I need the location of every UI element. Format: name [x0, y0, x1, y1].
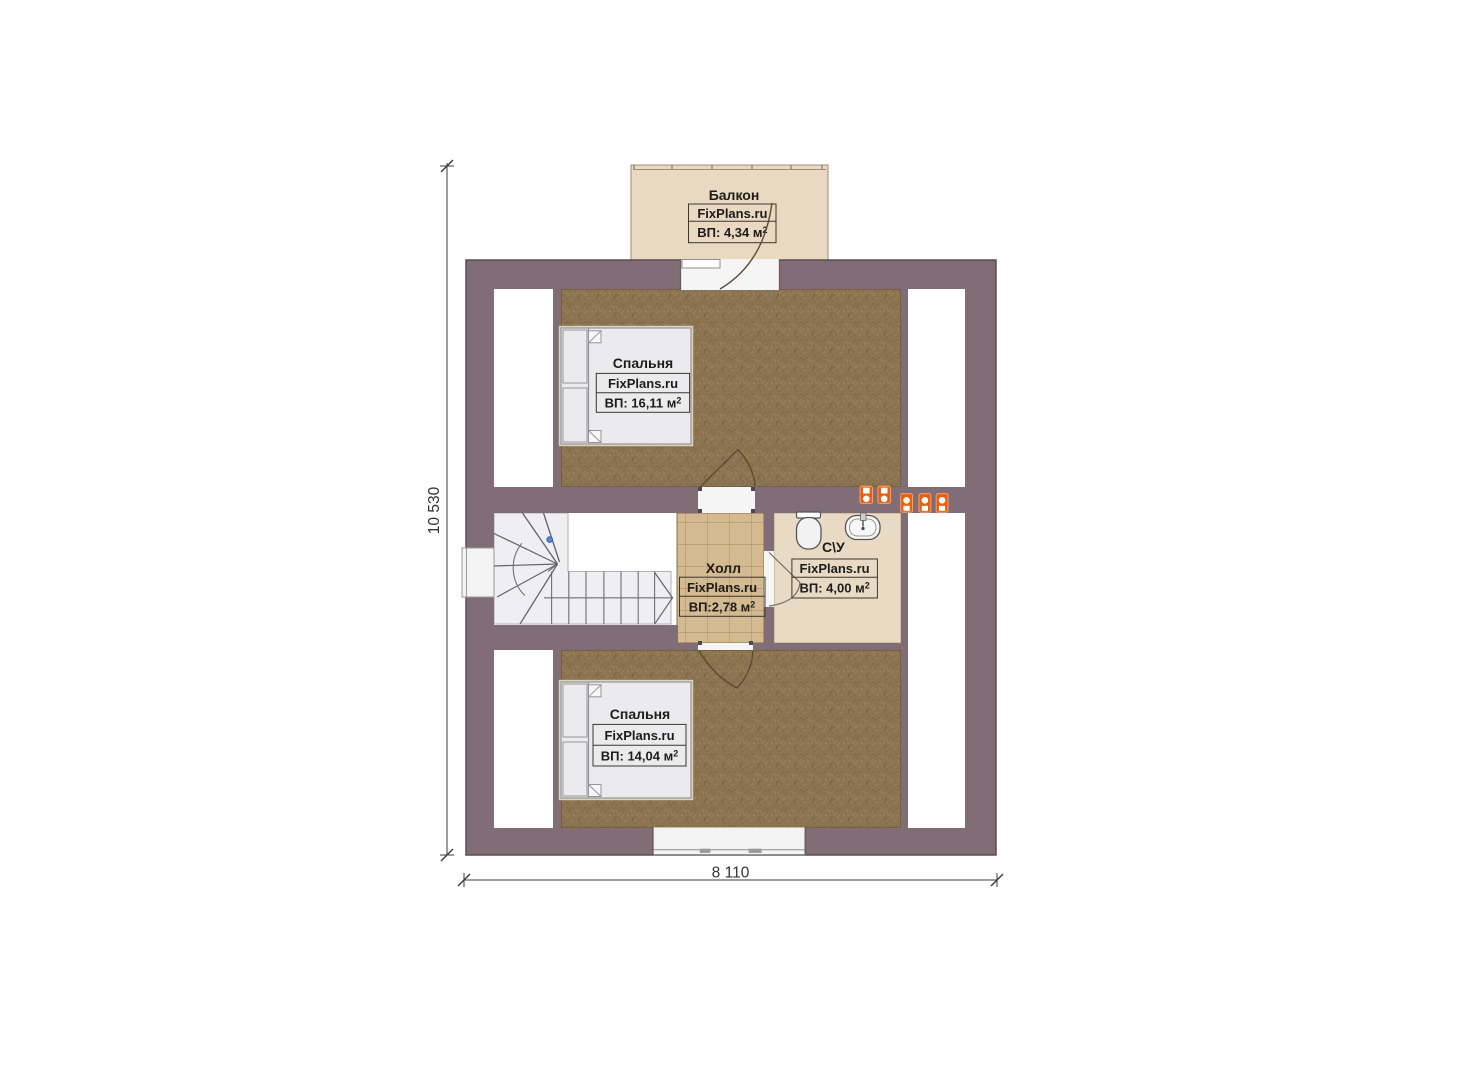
svg-text:FixPlans.ru: FixPlans.ru: [687, 580, 757, 595]
svg-text:8 110: 8 110: [712, 865, 750, 882]
svg-text:FixPlans.ru: FixPlans.ru: [608, 376, 678, 391]
svg-text:Спальня: Спальня: [610, 706, 670, 722]
svg-text:ВП:2,78 м2: ВП:2,78 м2: [689, 600, 756, 615]
svg-text:Холл: Холл: [706, 560, 741, 576]
svg-text:ВП: 4,34 м2: ВП: 4,34 м2: [697, 225, 767, 240]
svg-text:10 530: 10 530: [426, 486, 443, 534]
svg-text:FixPlans.ru: FixPlans.ru: [697, 206, 767, 221]
svg-text:ВП: 16,11 м2: ВП: 16,11 м2: [605, 396, 682, 411]
svg-text:FixPlans.ru: FixPlans.ru: [800, 561, 870, 576]
svg-text:Балкон: Балкон: [709, 187, 760, 203]
svg-text:ВП: 4,00 м2: ВП: 4,00 м2: [799, 581, 869, 596]
svg-text:ВП: 14,04 м2: ВП: 14,04 м2: [601, 749, 678, 764]
svg-text:FixPlans.ru: FixPlans.ru: [604, 728, 674, 743]
svg-text:С\У: С\У: [822, 539, 845, 555]
svg-text:Спальня: Спальня: [613, 355, 673, 371]
